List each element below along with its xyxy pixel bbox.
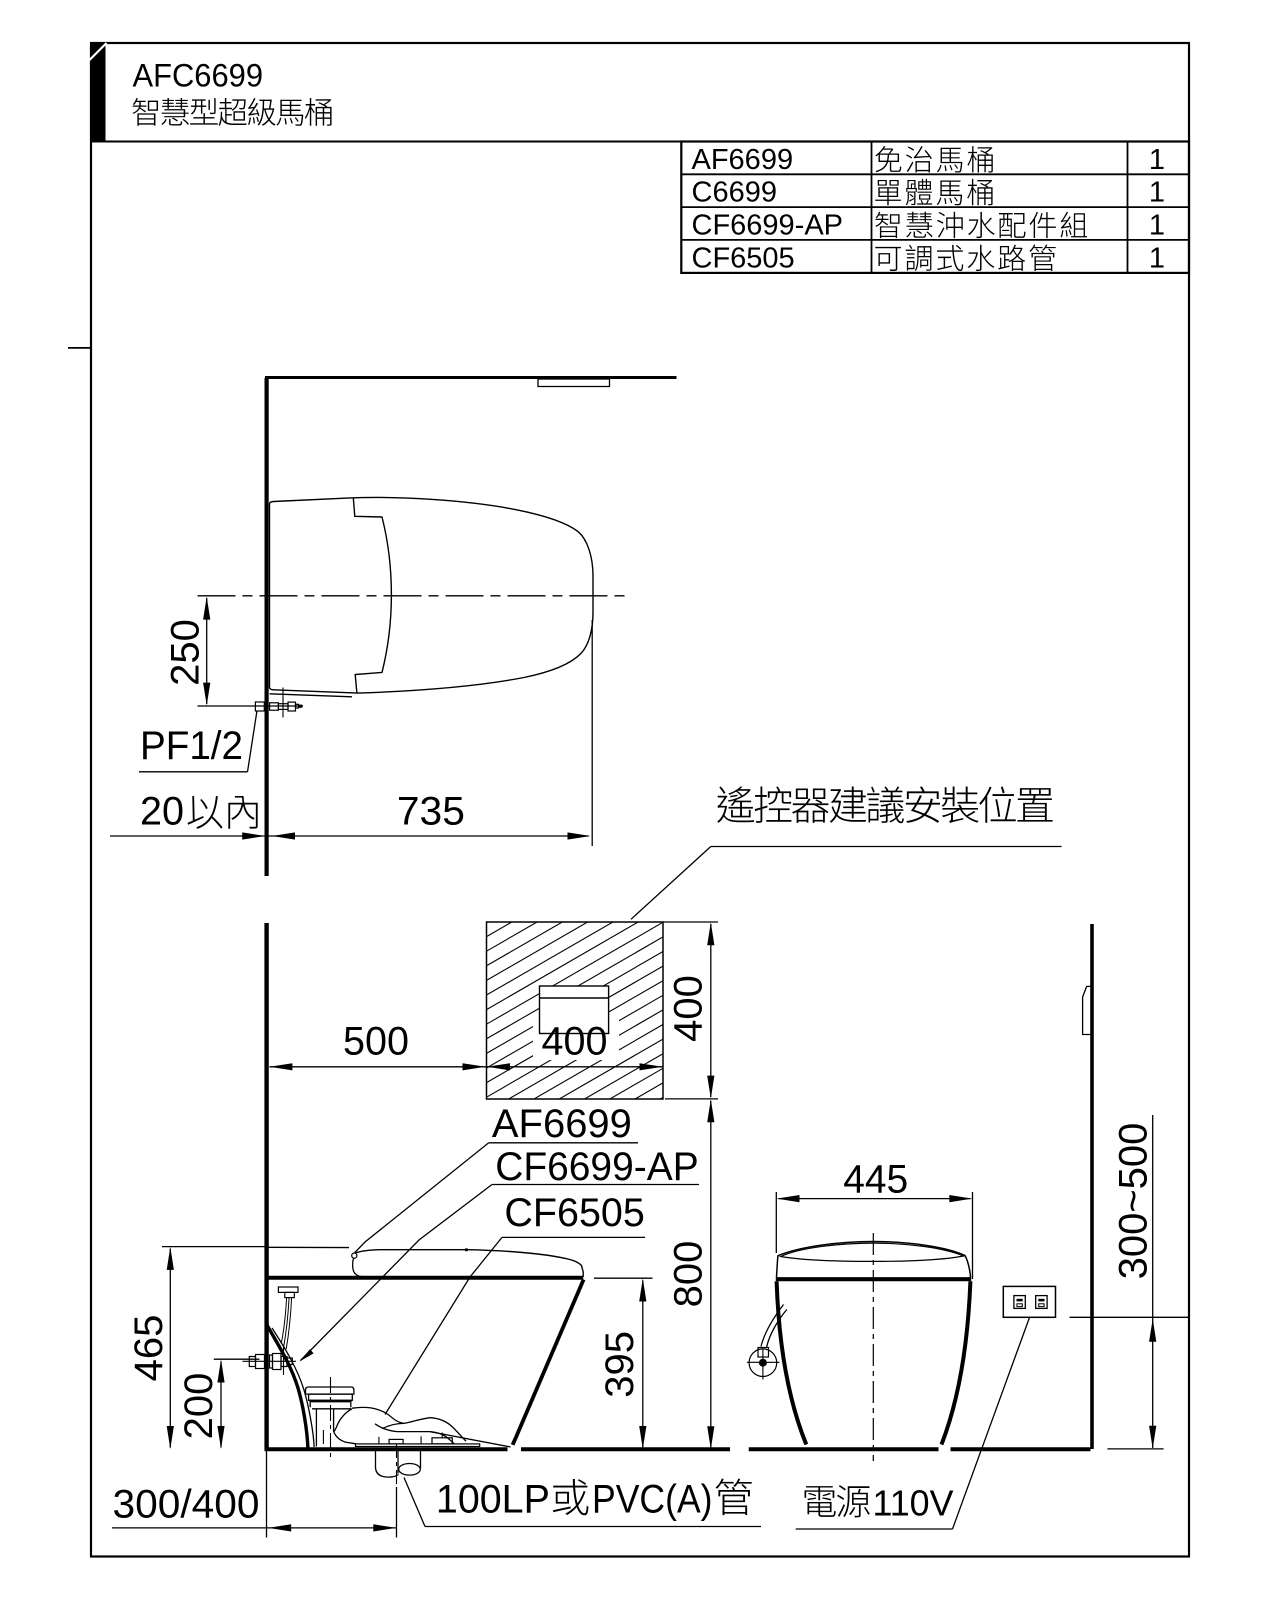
svg-text:AF6699: AF6699 <box>492 1102 632 1146</box>
svg-text:465: 465 <box>127 1315 171 1382</box>
svg-text:CF6505: CF6505 <box>504 1191 644 1235</box>
svg-text:100LP: 100LP <box>436 1478 550 1522</box>
svg-text:PF1/2: PF1/2 <box>140 724 243 768</box>
svg-text:CF6699-AP: CF6699-AP <box>495 1145 699 1189</box>
svg-text:CF6505: CF6505 <box>692 242 795 274</box>
svg-text:400: 400 <box>667 975 711 1042</box>
svg-text:CF6699-AP: CF6699-AP <box>692 210 844 242</box>
svg-text:250: 250 <box>163 619 207 686</box>
svg-text:110V: 110V <box>873 1482 954 1523</box>
svg-text:C6699: C6699 <box>692 177 777 209</box>
svg-text:AFC6699: AFC6699 <box>133 58 264 94</box>
svg-text:500: 500 <box>343 1020 409 1064</box>
svg-text:20: 20 <box>140 790 184 834</box>
svg-text:735: 735 <box>397 790 465 834</box>
svg-text:1: 1 <box>1149 144 1165 176</box>
svg-text:AF6699: AF6699 <box>692 144 794 176</box>
svg-text:400: 400 <box>542 1020 608 1064</box>
svg-text:PVC(A): PVC(A) <box>592 1478 713 1522</box>
svg-text:800: 800 <box>667 1241 711 1308</box>
svg-text:200: 200 <box>177 1373 221 1440</box>
svg-text:1: 1 <box>1149 242 1165 274</box>
svg-text:300~500: 300~500 <box>1112 1123 1156 1280</box>
svg-text:1: 1 <box>1149 210 1165 242</box>
svg-text:1: 1 <box>1149 177 1165 209</box>
svg-text:300/400: 300/400 <box>113 1483 260 1527</box>
svg-text:395: 395 <box>598 1331 642 1398</box>
svg-text:445: 445 <box>843 1158 908 1202</box>
